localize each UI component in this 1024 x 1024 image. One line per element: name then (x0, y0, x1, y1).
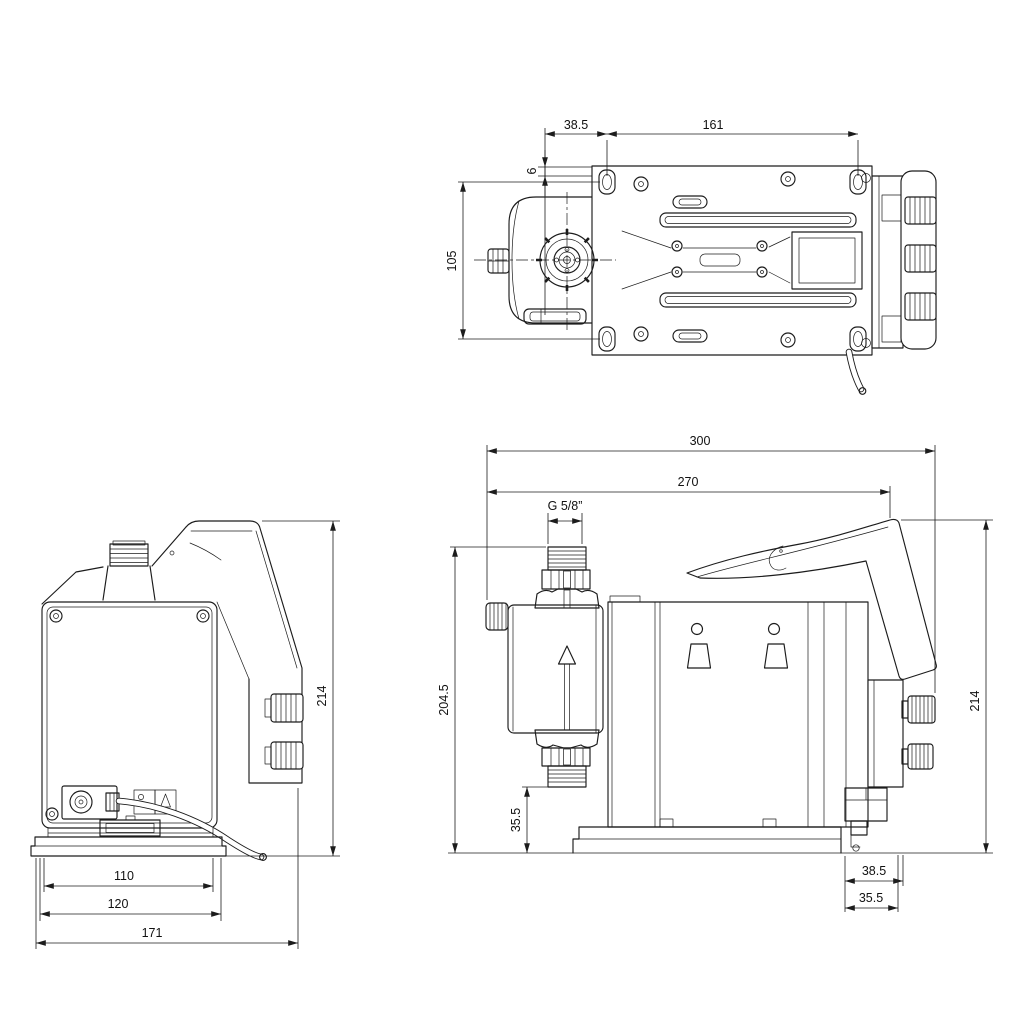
suction-port-back (42, 527, 221, 604)
dim-back-214: 214 (315, 686, 329, 707)
vent-knob (486, 603, 508, 630)
base-side (573, 788, 887, 853)
top-view-dimensions: 38.5 161 6 105 (445, 118, 858, 339)
drawing-sheet: 38.5 161 6 105 (0, 0, 1024, 1024)
dim-top-105: 105 (445, 251, 459, 272)
dim-back-120: 120 (108, 897, 129, 911)
knob-side-2 (902, 744, 933, 769)
dim-top-38-5: 38.5 (564, 118, 588, 132)
pump-body-side (608, 596, 903, 827)
control-panel-side (687, 519, 936, 679)
power-cable-top (849, 352, 866, 394)
dim-side-35-5-right: 35.5 (859, 891, 883, 905)
flow-arrow (559, 646, 576, 664)
top-view: 38.5 161 6 105 (445, 118, 936, 394)
dim-top-6: 6 (525, 167, 539, 174)
dosing-head-side (486, 547, 603, 787)
discharge-thread (548, 547, 586, 570)
mounting-bracket-side (845, 788, 887, 851)
knob-top-2 (905, 245, 936, 272)
dim-side-thread: G 5/8” (548, 499, 583, 513)
suction-thread (548, 766, 586, 787)
dim-top-161: 161 (703, 118, 724, 132)
knob-back-2 (265, 742, 303, 769)
knob-back-1 (265, 694, 303, 722)
drain-fitting-top (524, 309, 586, 324)
mounting-plate-top (592, 166, 872, 355)
dim-side-300: 300 (690, 434, 711, 448)
back-view: 214 110 120 171 (31, 521, 340, 949)
dim-side-214: 214 (968, 691, 982, 712)
knob-side-1 (902, 696, 935, 723)
technical-drawing-canvas: 38.5 161 6 105 (0, 0, 1024, 1024)
dim-back-110: 110 (114, 869, 134, 883)
dim-side-35-5-left: 35.5 (509, 808, 523, 832)
motor-cover-back (42, 602, 217, 828)
knob-top-1 (905, 197, 936, 224)
dim-side-204-5: 204.5 (437, 684, 451, 715)
side-view: 300 270 G 5/8” 204.5 35.5 214 38.5 35.5 (437, 434, 993, 912)
dim-back-171: 171 (142, 926, 163, 940)
dim-side-270: 270 (678, 475, 699, 489)
knob-top-3 (905, 293, 936, 320)
dim-side-38-5: 38.5 (862, 864, 886, 878)
